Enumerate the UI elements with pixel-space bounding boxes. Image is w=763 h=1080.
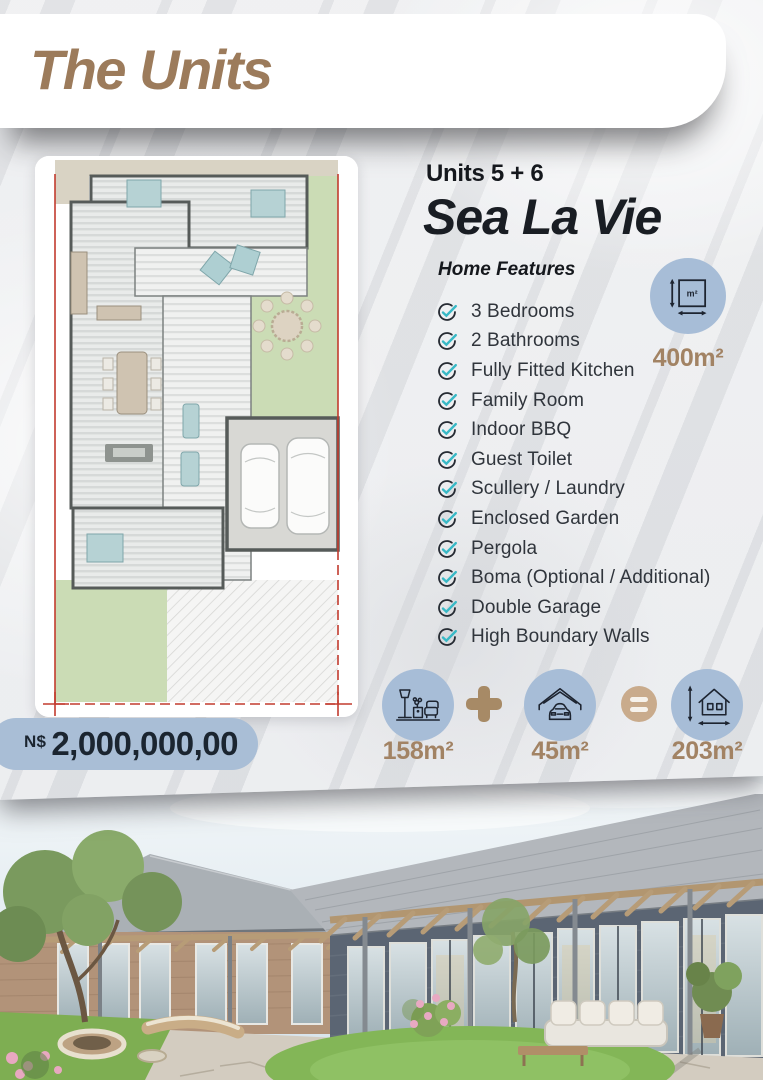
price-currency: N$ — [24, 732, 46, 752]
garage-car-icon — [534, 679, 586, 731]
feature-label: Scullery / Laundry — [471, 478, 625, 500]
unit-label: Units 5 + 6 — [426, 160, 543, 188]
living-room-furniture-icon — [393, 680, 443, 730]
feature-item: Pergola — [436, 534, 710, 564]
price-pill: N$ 2,000,000,00 — [0, 718, 258, 770]
courtyard-photo — [0, 770, 763, 1080]
brochure-page: The Units — [0, 0, 763, 1080]
check-icon — [436, 538, 458, 560]
house-dimensions-icon — [681, 679, 733, 731]
feature-label: 2 Bathrooms — [471, 330, 580, 352]
check-icon — [436, 567, 458, 589]
feature-item: Family Room — [436, 386, 710, 416]
check-icon — [436, 508, 458, 530]
svg-text:m²: m² — [687, 289, 698, 299]
feature-label: Guest Toilet — [471, 449, 572, 471]
feature-item: High Boundary Walls — [436, 623, 710, 653]
features-heading: Home Features — [438, 259, 575, 281]
feature-item: Guest Toilet — [436, 445, 710, 475]
feature-label: Indoor BBQ — [471, 419, 571, 441]
check-icon — [436, 449, 458, 471]
marble-background: The Units — [0, 0, 763, 805]
feature-item: Indoor BBQ — [436, 415, 710, 445]
garage-area-badge — [524, 669, 596, 741]
feature-label: High Boundary Walls — [471, 626, 650, 648]
area-measure-icon: m² — [664, 272, 712, 320]
feature-label: Pergola — [471, 538, 537, 560]
check-icon — [436, 626, 458, 648]
check-icon — [436, 301, 458, 323]
feature-item: Boma (Optional / Additional) — [436, 563, 710, 593]
check-icon — [436, 390, 458, 412]
feature-label: Enclosed Garden — [471, 508, 619, 530]
feature-label: Boma (Optional / Additional) — [471, 567, 710, 589]
courtyard-photo-art — [0, 770, 763, 1080]
interior-area-label: 158m² — [368, 737, 468, 766]
interior-area-badge — [382, 669, 454, 741]
check-icon — [436, 360, 458, 382]
equals-icon — [621, 686, 657, 722]
total-area-badge — [671, 669, 743, 741]
feature-label: 3 Bedrooms — [471, 301, 574, 323]
check-icon — [436, 330, 458, 352]
stand-size-badge: m² — [650, 258, 726, 334]
feature-item: Enclosed Garden — [436, 504, 710, 534]
header-card: The Units — [0, 14, 726, 128]
stand-size-label: 400m² — [636, 344, 740, 373]
feature-item: Double Garage — [436, 593, 710, 623]
check-icon — [436, 478, 458, 500]
total-area-label: 203m² — [657, 737, 757, 766]
upper-section: The Units — [0, 0, 763, 810]
check-icon — [436, 597, 458, 619]
feature-label: Fully Fitted Kitchen — [471, 360, 635, 382]
page-title: The Units — [30, 37, 272, 102]
feature-item: Scullery / Laundry — [436, 475, 710, 505]
feature-label: Double Garage — [471, 597, 601, 619]
price-amount: 2,000,000,00 — [51, 725, 238, 763]
floor-plan-card — [35, 156, 358, 717]
plus-icon — [466, 686, 502, 722]
unit-name: Sea La Vie — [423, 188, 661, 246]
garage-area-label: 45m² — [510, 737, 610, 766]
check-icon — [436, 419, 458, 441]
feature-label: Family Room — [471, 390, 584, 412]
floor-plan-drawing — [35, 156, 358, 717]
